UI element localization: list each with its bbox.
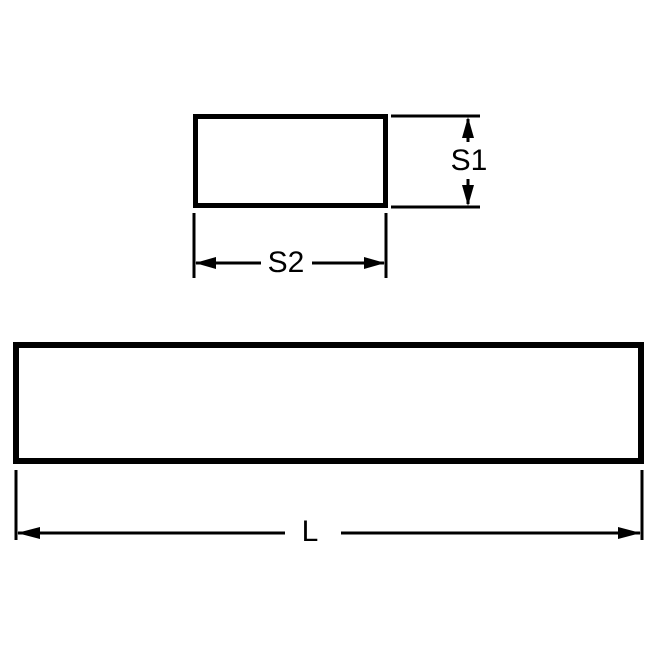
s2-arrow-left-icon	[195, 257, 216, 269]
length-arrow-right-icon	[618, 527, 641, 539]
s1-arrow-down-icon	[462, 185, 474, 206]
s1-dimension: S1	[391, 116, 488, 207]
length-label: L	[302, 515, 319, 548]
side-view: L	[16, 345, 642, 549]
s1-arrow-up-icon	[462, 117, 474, 138]
side-view-rect	[16, 345, 641, 461]
s2-label: S2	[268, 246, 305, 279]
keystock-dimension-diagram: S1 S2 L	[0, 0, 670, 670]
cross-section-view: S1 S2	[194, 116, 488, 279]
technical-drawing-canvas: S1 S2 L	[0, 0, 670, 670]
s2-dimension: S2	[194, 213, 386, 279]
length-dimension: L	[16, 470, 642, 549]
s1-label: S1	[451, 144, 488, 177]
length-arrow-left-icon	[17, 527, 40, 539]
cross-section-rect	[196, 117, 386, 206]
s2-arrow-right-icon	[364, 257, 385, 269]
